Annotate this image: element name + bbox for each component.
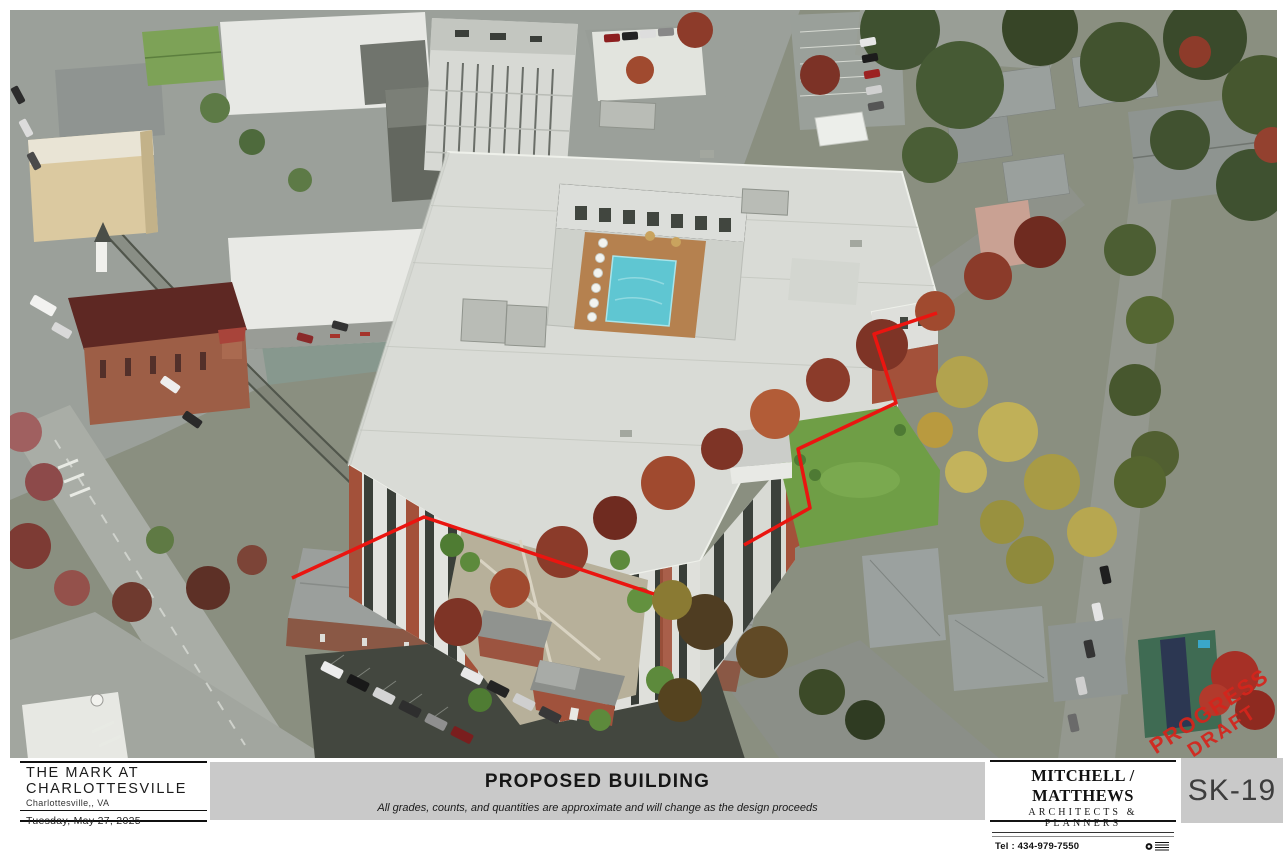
sheet-number-panel: SK-19 [1181,758,1283,823]
disclaimer-note: All grades, counts, and quantities are a… [210,802,985,814]
architectural-sheet: THE MARK AT CHARLOTTESVILLE Charlottesvi… [0,0,1287,832]
project-title-block: THE MARK AT CHARLOTTESVILLE Charlottesvi… [20,761,207,822]
firm-divider [992,832,1174,837]
aerial-rendering [10,10,1277,758]
firm-phone: Tel : 434-979-7550 [995,841,1079,852]
firm-block: MITCHELL / MATTHEWS ARCHITECTS & PLANNER… [990,760,1176,822]
aerial-photo [10,10,1277,758]
firm-logo-mark-icon [1145,841,1171,852]
rooftop-pool-courtyard [547,184,748,340]
project-name: THE MARK AT CHARLOTTESVILLE [20,763,207,797]
sheet-date: Tuesday, May 27, 2025 [20,811,207,827]
project-name-line1: THE MARK AT [26,766,207,782]
firm-tagline: ARCHITECTS & PLANNERS [990,806,1176,832]
sheet-number: SK-19 [1188,774,1276,808]
project-name-line2: CHARLOTTESVILLE [26,782,207,798]
drawing-title: PROPOSED BUILDING [210,771,985,793]
firm-name: MITCHELL / MATTHEWS [990,762,1176,806]
project-location: Charlottesville,, VA [20,797,207,811]
drawing-title-panel: PROPOSED BUILDING All grades, counts, an… [210,762,985,820]
